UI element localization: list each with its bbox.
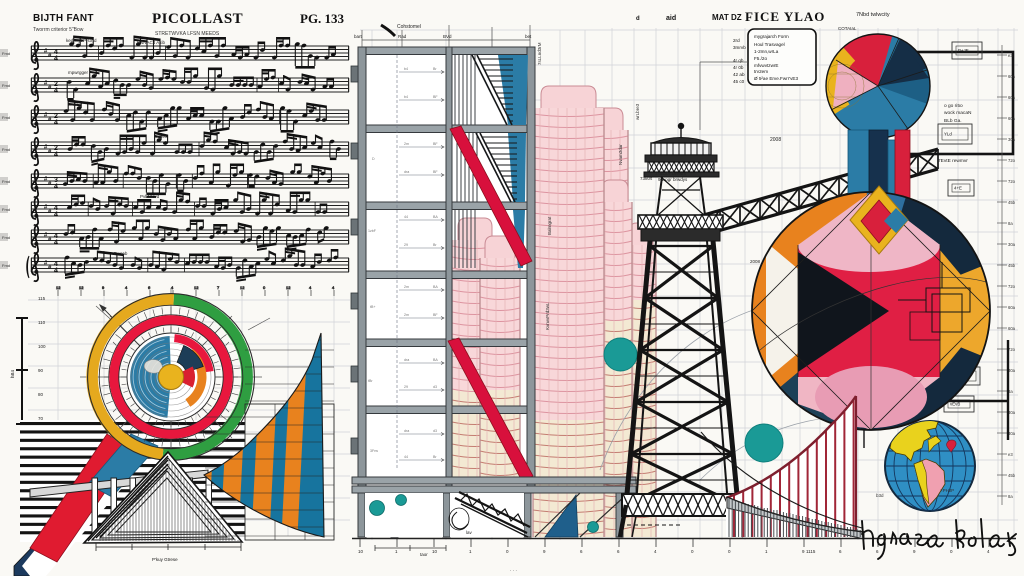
svg-text:29: 29 (404, 385, 408, 389)
svg-text:Tworrm criterior 5"Bow: Tworrm criterior 5"Bow (33, 27, 84, 33)
svg-text:12: 12 (286, 285, 291, 290)
svg-text:trv2em: trv2em (754, 69, 768, 74)
svg-text:tBr: tBr (368, 379, 373, 383)
svg-text:4: 4 (54, 212, 58, 219)
svg-text:1115: 1115 (806, 549, 816, 554)
svg-text:44: 44 (404, 455, 408, 459)
svg-text:BIJTH FANT: BIJTH FANT (33, 13, 94, 24)
svg-text:F5./2o: F5./2o (754, 56, 767, 61)
svg-text:BF: BF (433, 170, 438, 174)
svg-text:8a: 8a (1008, 494, 1013, 499)
svg-text:bet: bet (525, 34, 532, 39)
svg-text:BVd: BVd (443, 34, 452, 39)
svg-text:90: 90 (38, 368, 44, 373)
svg-text:4: 4 (54, 240, 58, 247)
svg-text:Rad: Rad (398, 34, 407, 39)
svg-text:PvbNtcvd: PvbNtcvd (140, 194, 160, 199)
svg-text:e3: e3 (1008, 452, 1013, 457)
svg-text:7EvtE rewmvr: 7EvtE rewmvr (938, 158, 968, 164)
svg-text:b4: b4 (404, 67, 408, 71)
svg-text:e3: e3 (1008, 53, 1013, 58)
svg-text:60a: 60a (1008, 74, 1016, 79)
svg-text:29: 29 (404, 243, 408, 247)
svg-text:dra: dra (404, 429, 409, 433)
svg-text:72o: 72o (1008, 284, 1016, 289)
svg-text:hB4: hB4 (10, 369, 15, 378)
svg-text:10: 10 (432, 549, 438, 554)
svg-text:12: 12 (56, 285, 61, 290)
svg-text:BA: BA (433, 215, 438, 219)
svg-text:8a: 8a (1008, 221, 1013, 226)
svg-text:45b: 45b (1008, 473, 1016, 478)
svg-text:BA: BA (433, 358, 438, 362)
svg-text:7sLLnd3rM: 7sLLnd3rM (537, 42, 542, 65)
svg-text:100: 100 (38, 344, 46, 349)
svg-text:4: 4 (54, 268, 58, 275)
svg-text:2m: 2m (404, 142, 409, 146)
svg-text:4: 4 (54, 120, 58, 127)
svg-text:wock macaN: wock macaN (944, 110, 972, 116)
svg-text:60a: 60a (1008, 116, 1016, 121)
svg-text:4: 4 (54, 88, 58, 95)
svg-text:110: 110 (38, 320, 46, 325)
svg-text:115: 115 (38, 296, 46, 301)
svg-text:aid: aid (666, 15, 676, 22)
svg-text:4: 4 (54, 152, 58, 159)
svg-text:. . .: . . . (510, 567, 517, 573)
svg-text:45 c0: 45 c0 (733, 79, 745, 84)
svg-text:d: d (636, 16, 640, 22)
svg-text:1-2mn,wrLa: 1-2mn,wrLa (754, 49, 779, 54)
svg-text:12: 12 (240, 285, 245, 290)
svg-text:Houl Trasvagel: Houl Trasvagel (754, 42, 785, 47)
svg-text:YLd: YLd (944, 132, 952, 137)
svg-text:vEvB: vEvB (950, 402, 960, 407)
svg-text:60a: 60a (1008, 326, 1016, 331)
svg-text:72o: 72o (1008, 179, 1016, 184)
svg-text:12: 12 (79, 285, 84, 290)
svg-text:lav: lav (466, 530, 473, 535)
svg-text:bart: bart (354, 34, 363, 39)
svg-text:Ø 5²ae Erve.Fwrr'vE3: Ø 5²ae Erve.Fwrr'vE3 (754, 76, 798, 81)
svg-text:7380s: 7380s (640, 176, 653, 181)
svg-text:30a: 30a (1008, 242, 1016, 247)
svg-text:BF: BF (433, 95, 438, 99)
svg-text:1zbF: 1zbF (368, 229, 377, 233)
svg-text:STRETWVKA LFSN MEEDS: STRETWVKA LFSN MEEDS (155, 31, 220, 37)
svg-text:80: 80 (38, 392, 44, 397)
svg-text:MAT DZ: MAT DZ (712, 13, 742, 22)
svg-text:dra: dra (404, 170, 409, 174)
svg-text:2rd: 2rd (733, 38, 740, 43)
svg-text:mygrajarch Form: mygrajarch Form (754, 34, 789, 39)
svg-text:10: 10 (358, 549, 364, 554)
svg-text:Balrngrat: Balrngrat (547, 216, 552, 235)
svg-text:b3d: b3d (876, 493, 884, 498)
svg-text:P'kuy Gtrese: P'kuy Gtrese (152, 557, 178, 562)
svg-text:4r 0b: 4r 0b (733, 65, 744, 70)
svg-text:mpwrgger: mpwrgger (68, 70, 89, 75)
svg-text:PwNACd Axib: PwNACd Axib (137, 40, 166, 45)
svg-text:o go ri5o: o go ri5o (944, 103, 963, 109)
svg-text:60a: 60a (1008, 305, 1016, 310)
svg-text:BF: BF (433, 142, 438, 146)
svg-text:d3: d3 (433, 385, 437, 389)
svg-text:3Frw: 3Frw (370, 449, 378, 453)
svg-text:7Nbd twlwcity: 7Nbd twlwcity (856, 12, 890, 18)
svg-text:PG. 133: PG. 133 (300, 11, 345, 26)
svg-text:dra: dra (404, 358, 409, 362)
svg-text:72o: 72o (1008, 158, 1016, 163)
svg-text:2m: 2m (404, 285, 409, 289)
svg-text:FICE YLAO: FICE YLAO (745, 9, 825, 24)
svg-text:4: 4 (54, 56, 58, 63)
svg-text:2008: 2008 (770, 137, 781, 143)
svg-text:P+JE: P+JE (958, 48, 969, 53)
svg-text:Nvam3dar: Nvam3dar (618, 144, 623, 165)
svg-text:×PHJP: ×PHJP (940, 488, 954, 493)
svg-text:2008: 2008 (750, 259, 761, 264)
svg-text:BF: BF (433, 313, 438, 317)
svg-text:D: D (372, 157, 375, 161)
svg-text:1NbdDr Drewm: 1NbdDr Drewm (655, 171, 686, 176)
svg-text:BLb Ga.: BLb Ga. (944, 118, 962, 124)
svg-text:taor: taor (420, 552, 428, 557)
svg-text:mfvwvtzwrE: mfvwvtzwrE (754, 63, 779, 68)
svg-text:KvnvvPrd3wL: KvnvvPrd3wL (545, 302, 550, 330)
svg-text:txrbex: txrbex (155, 134, 168, 139)
svg-text:44: 44 (404, 215, 408, 219)
svg-text:42 ab: 42 ab (733, 72, 745, 77)
svg-text:45b: 45b (1008, 263, 1016, 268)
svg-text:2m: 2m (404, 313, 409, 317)
svg-text:b4: b4 (404, 95, 408, 99)
svg-text:d3: d3 (433, 429, 437, 433)
svg-text:tzrux: tzrux (68, 102, 79, 107)
svg-text:4+E: 4+E (954, 186, 962, 191)
svg-text:kedangt P-Grtd: kedangt P-Grtd (66, 38, 97, 43)
svg-text:4: 4 (54, 184, 58, 191)
svg-text:9rwogr brwdys: 9rwogr brwdys (658, 177, 688, 182)
svg-text:12: 12 (194, 285, 199, 290)
svg-text:wrLbre3: wrLbre3 (635, 103, 640, 120)
svg-text:30a: 30a (1008, 137, 1016, 142)
svg-text:Cohstomel: Cohstomel (397, 24, 421, 30)
svg-text:3mrvb: 3mrvb (733, 45, 746, 50)
svg-text:60a: 60a (1008, 95, 1016, 100)
svg-text:45b: 45b (1008, 200, 1016, 205)
svg-text:PICOLLAST: PICOLLAST (152, 11, 243, 27)
svg-text:~ Pwsab: ~ Pwsab (110, 251, 128, 256)
svg-text:tB+: tB+ (370, 305, 376, 309)
svg-text:COTAIaL: COTAIaL (838, 26, 857, 31)
svg-text:BA: BA (433, 285, 438, 289)
